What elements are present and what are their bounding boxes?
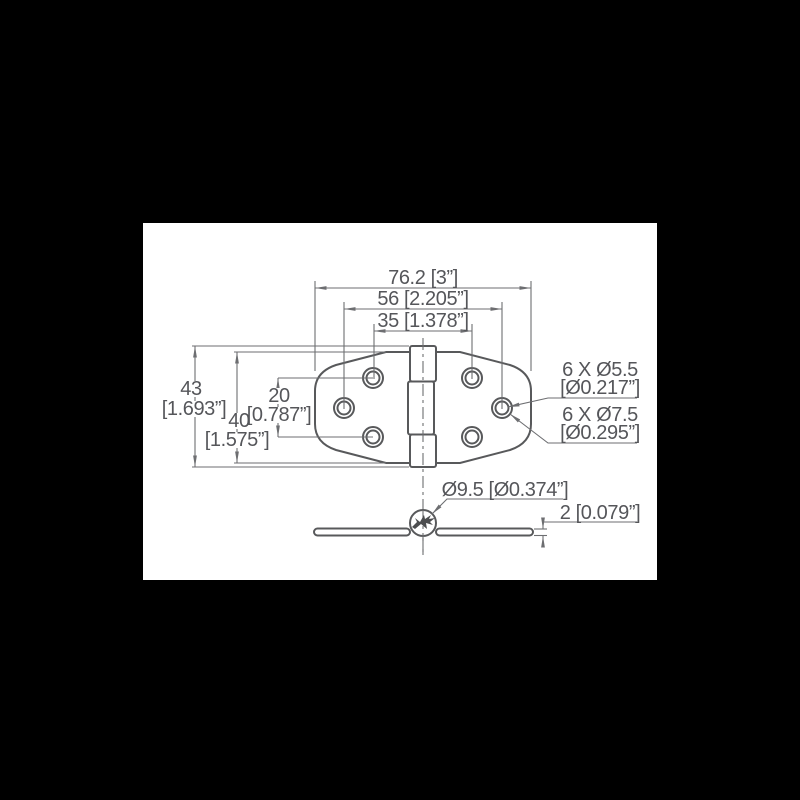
dim-width-holes-mid: 56 [2.205”] (377, 288, 468, 310)
callout-leaf-thickness: 2 [0.079”] (560, 502, 641, 524)
dim-height-leaf-in: [1.575”] (205, 429, 270, 451)
drawing-canvas: 76.2 [3”] 56 [2.205”] 35 [1.378”] 43 [1.… (143, 223, 657, 580)
callout-barrel-dia: Ø9.5 [Ø0.374”] (442, 479, 569, 501)
callout-hole-large-in: [Ø0.295”] (560, 422, 640, 444)
callout-hole-small-in: [Ø0.217”] (560, 377, 640, 399)
hole-right-bottom-inner (466, 431, 479, 444)
knuckle-middle (408, 382, 434, 435)
hinge-technical-drawing: 76.2 [3”] 56 [2.205”] 35 [1.378”] 43 [1.… (143, 223, 657, 580)
side-right-leaf (436, 529, 533, 536)
leader-barrel-dia (432, 499, 563, 514)
dim-hole-rows-in: [0.787”] (247, 404, 312, 426)
right-leaf-outline (436, 352, 531, 463)
dimension-text: 76.2 [3”] 56 [2.205”] 35 [1.378”] 43 [1.… (162, 267, 641, 524)
dim-width-holes-top: 35 [1.378”] (377, 310, 468, 332)
side-left-leaf (314, 529, 410, 536)
dim-height-overall-in: [1.693”] (162, 398, 227, 420)
left-leaf-outline (315, 352, 410, 463)
dim-height-overall-mm: 43 (180, 378, 202, 400)
dim-width-overall: 76.2 [3”] (388, 267, 458, 289)
page: { "colors": { "page-bg": "#000000", "can… (0, 0, 800, 800)
